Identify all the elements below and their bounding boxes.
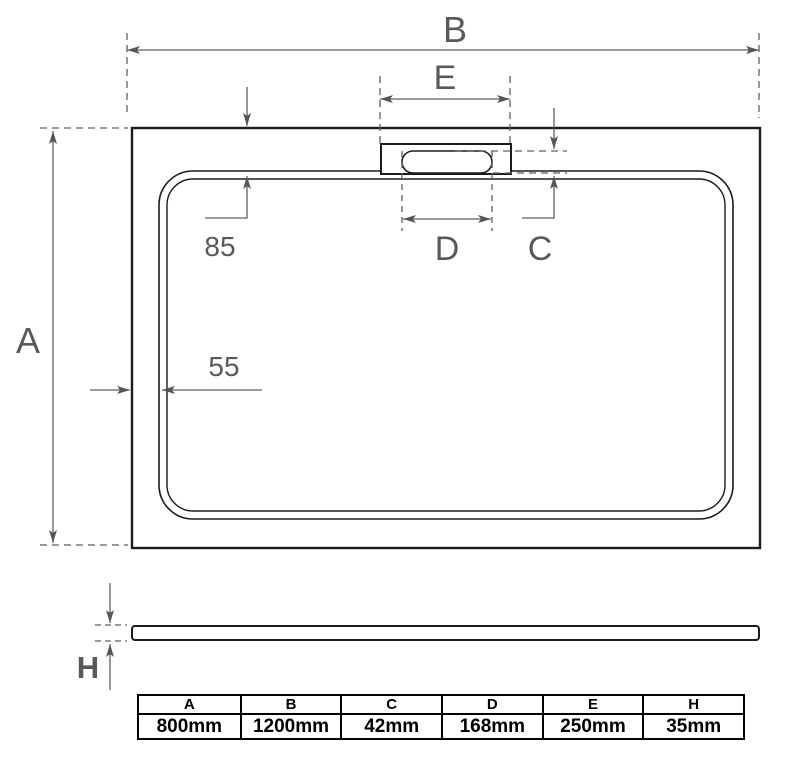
table-value-H: 35mm [642,715,743,738]
table-value-C: 42mm [340,715,441,738]
dimensions-table: A B C D E H 800mm 1200mm 42mm 168mm 250m… [137,694,745,740]
waste-slot-pill [402,151,492,173]
table-header-H: H [642,696,743,715]
technical-drawing-canvas: B E A D C H 85 55 A B C D E H 800mm 1200… [0,0,800,782]
table-header-A: A [139,696,240,715]
dim-label-55: 55 [208,351,239,382]
dim-label-B: B [443,9,467,50]
tray-diagram-svg: B E A D C H 85 55 [0,0,800,690]
dim-label-85: 85 [204,231,235,262]
table-value-B: 1200mm [240,715,341,738]
table-header-B: B [240,696,341,715]
tray-plan-view [132,128,760,548]
table-value-E: 250mm [542,715,643,738]
table-header-C: C [340,696,441,715]
table-header-D: D [441,696,542,715]
dim-label-D: D [435,230,460,268]
tray-side-profile [132,626,759,640]
dim-label-E: E [434,59,457,97]
dim-label-C: C [528,230,553,268]
table-header-E: E [542,696,643,715]
table-value-D: 168mm [441,715,542,738]
dim-label-A: A [16,320,40,361]
table-value-A: 800mm [139,715,240,738]
dim-label-H: H [77,650,99,685]
tray-outer-edge [132,128,760,548]
